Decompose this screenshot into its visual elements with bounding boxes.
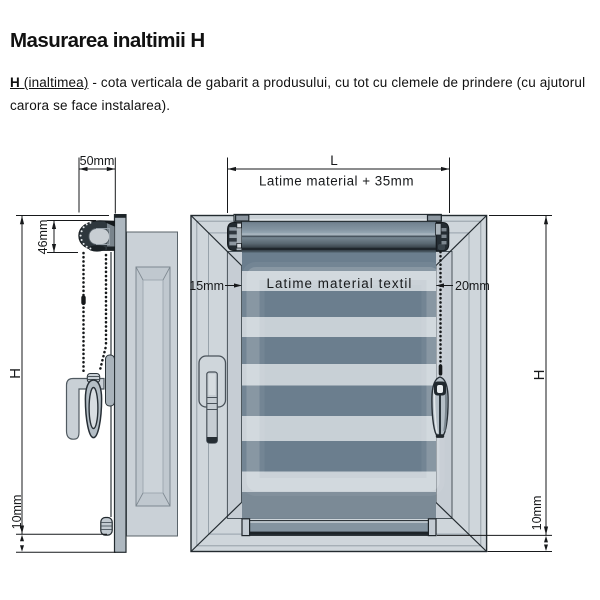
svg-text:Latime material + 35mm: Latime material + 35mm xyxy=(259,174,414,189)
svg-text:Latime material textil: Latime material textil xyxy=(267,276,413,291)
svg-text:50mm: 50mm xyxy=(80,154,115,168)
svg-text:L: L xyxy=(330,153,338,168)
svg-text:20mm: 20mm xyxy=(455,279,490,293)
svg-text:10mm: 10mm xyxy=(10,495,24,530)
svg-text:46mm: 46mm xyxy=(36,220,50,255)
svg-text:15mm: 15mm xyxy=(189,279,224,293)
svg-text:H: H xyxy=(7,368,24,379)
svg-text:H: H xyxy=(531,370,548,381)
svg-text:10mm: 10mm xyxy=(530,496,544,531)
